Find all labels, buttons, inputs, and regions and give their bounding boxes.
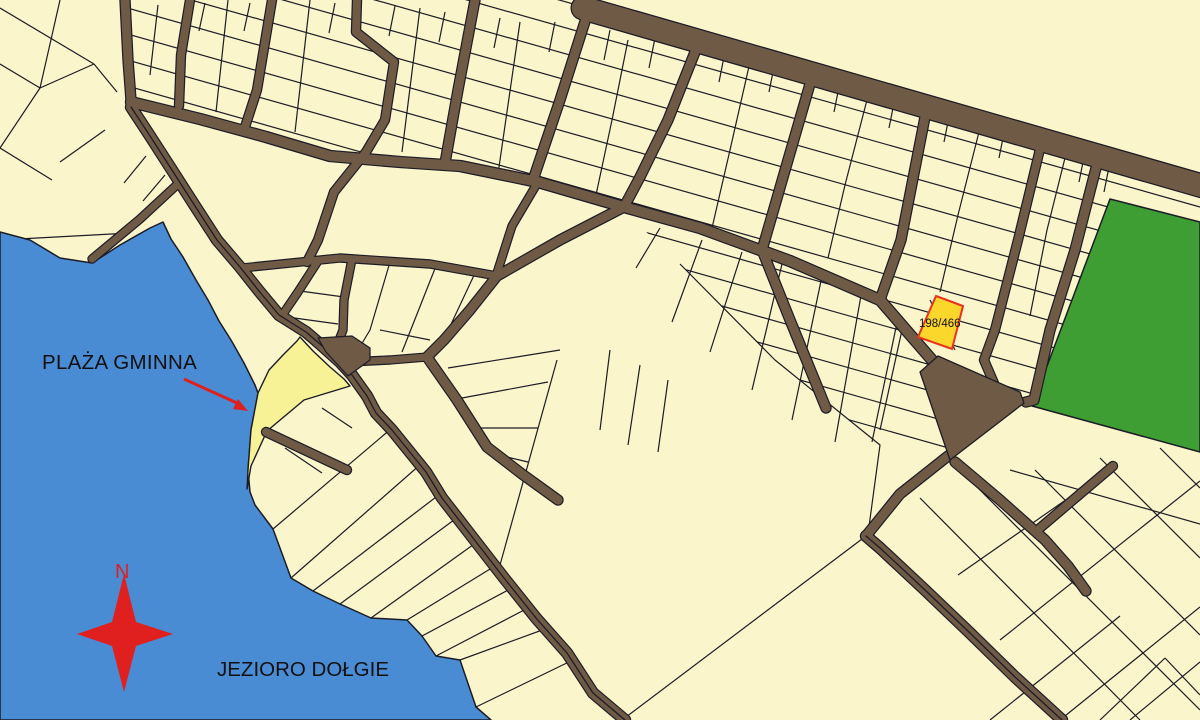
svg-text:N: N — [115, 561, 129, 583]
svg-text:198/466: 198/466 — [919, 318, 961, 330]
svg-text:PLAŻA GMINNA: PLAŻA GMINNA — [42, 351, 197, 374]
svg-text:JEZIORO DOŁGIE: JEZIORO DOŁGIE — [217, 658, 389, 681]
